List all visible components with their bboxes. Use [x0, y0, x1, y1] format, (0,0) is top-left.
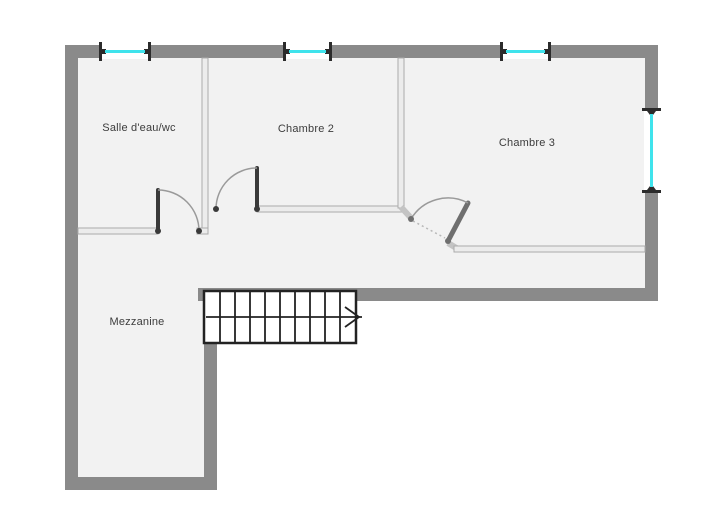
salle-eau-bottom-wall — [78, 228, 158, 234]
window-frame-left — [283, 42, 286, 61]
partition-chambre2-chambre3 — [398, 58, 404, 208]
window-frame-top — [642, 108, 661, 111]
door-jamb — [408, 216, 414, 222]
door-hinge — [254, 206, 260, 212]
partition-salle-chambre2 — [202, 58, 208, 234]
room-label-mezzanine: Mezzanine — [110, 316, 165, 328]
window-frame-left — [500, 42, 503, 61]
floor-area — [78, 58, 645, 477]
window-frame-right — [148, 42, 151, 61]
room-label-chambre-2: Chambre 2 — [278, 123, 334, 135]
chambre2-bottom-wall — [257, 206, 402, 212]
door-jamb — [213, 206, 219, 212]
window-frame-left — [99, 42, 102, 61]
door-hinge — [445, 238, 451, 244]
exterior-wall-top — [65, 45, 658, 58]
staircase — [204, 291, 362, 343]
exterior-wall-mezzanine-bottom — [65, 477, 217, 490]
door-jamb — [196, 228, 202, 234]
chambre3-bottom-wall — [454, 246, 645, 252]
floor-plan-drawing — [0, 0, 705, 520]
window-top-1 — [99, 42, 151, 61]
exterior-wall-left — [65, 45, 78, 490]
room-label-chambre-3: Chambre 3 — [499, 137, 555, 149]
door-hinge — [155, 228, 161, 234]
floor-plan-canvas: Salle d'eau/wc Chambre 2 Chambre 3 Mezza… — [0, 0, 705, 520]
window-frame-bottom — [642, 190, 661, 193]
window-top-2 — [283, 42, 332, 61]
window-right — [642, 108, 661, 193]
room-label-salle-eau: Salle d'eau/wc — [102, 122, 175, 134]
window-frame-right — [329, 42, 332, 61]
window-top-3 — [500, 42, 551, 61]
window-frame-right — [548, 42, 551, 61]
